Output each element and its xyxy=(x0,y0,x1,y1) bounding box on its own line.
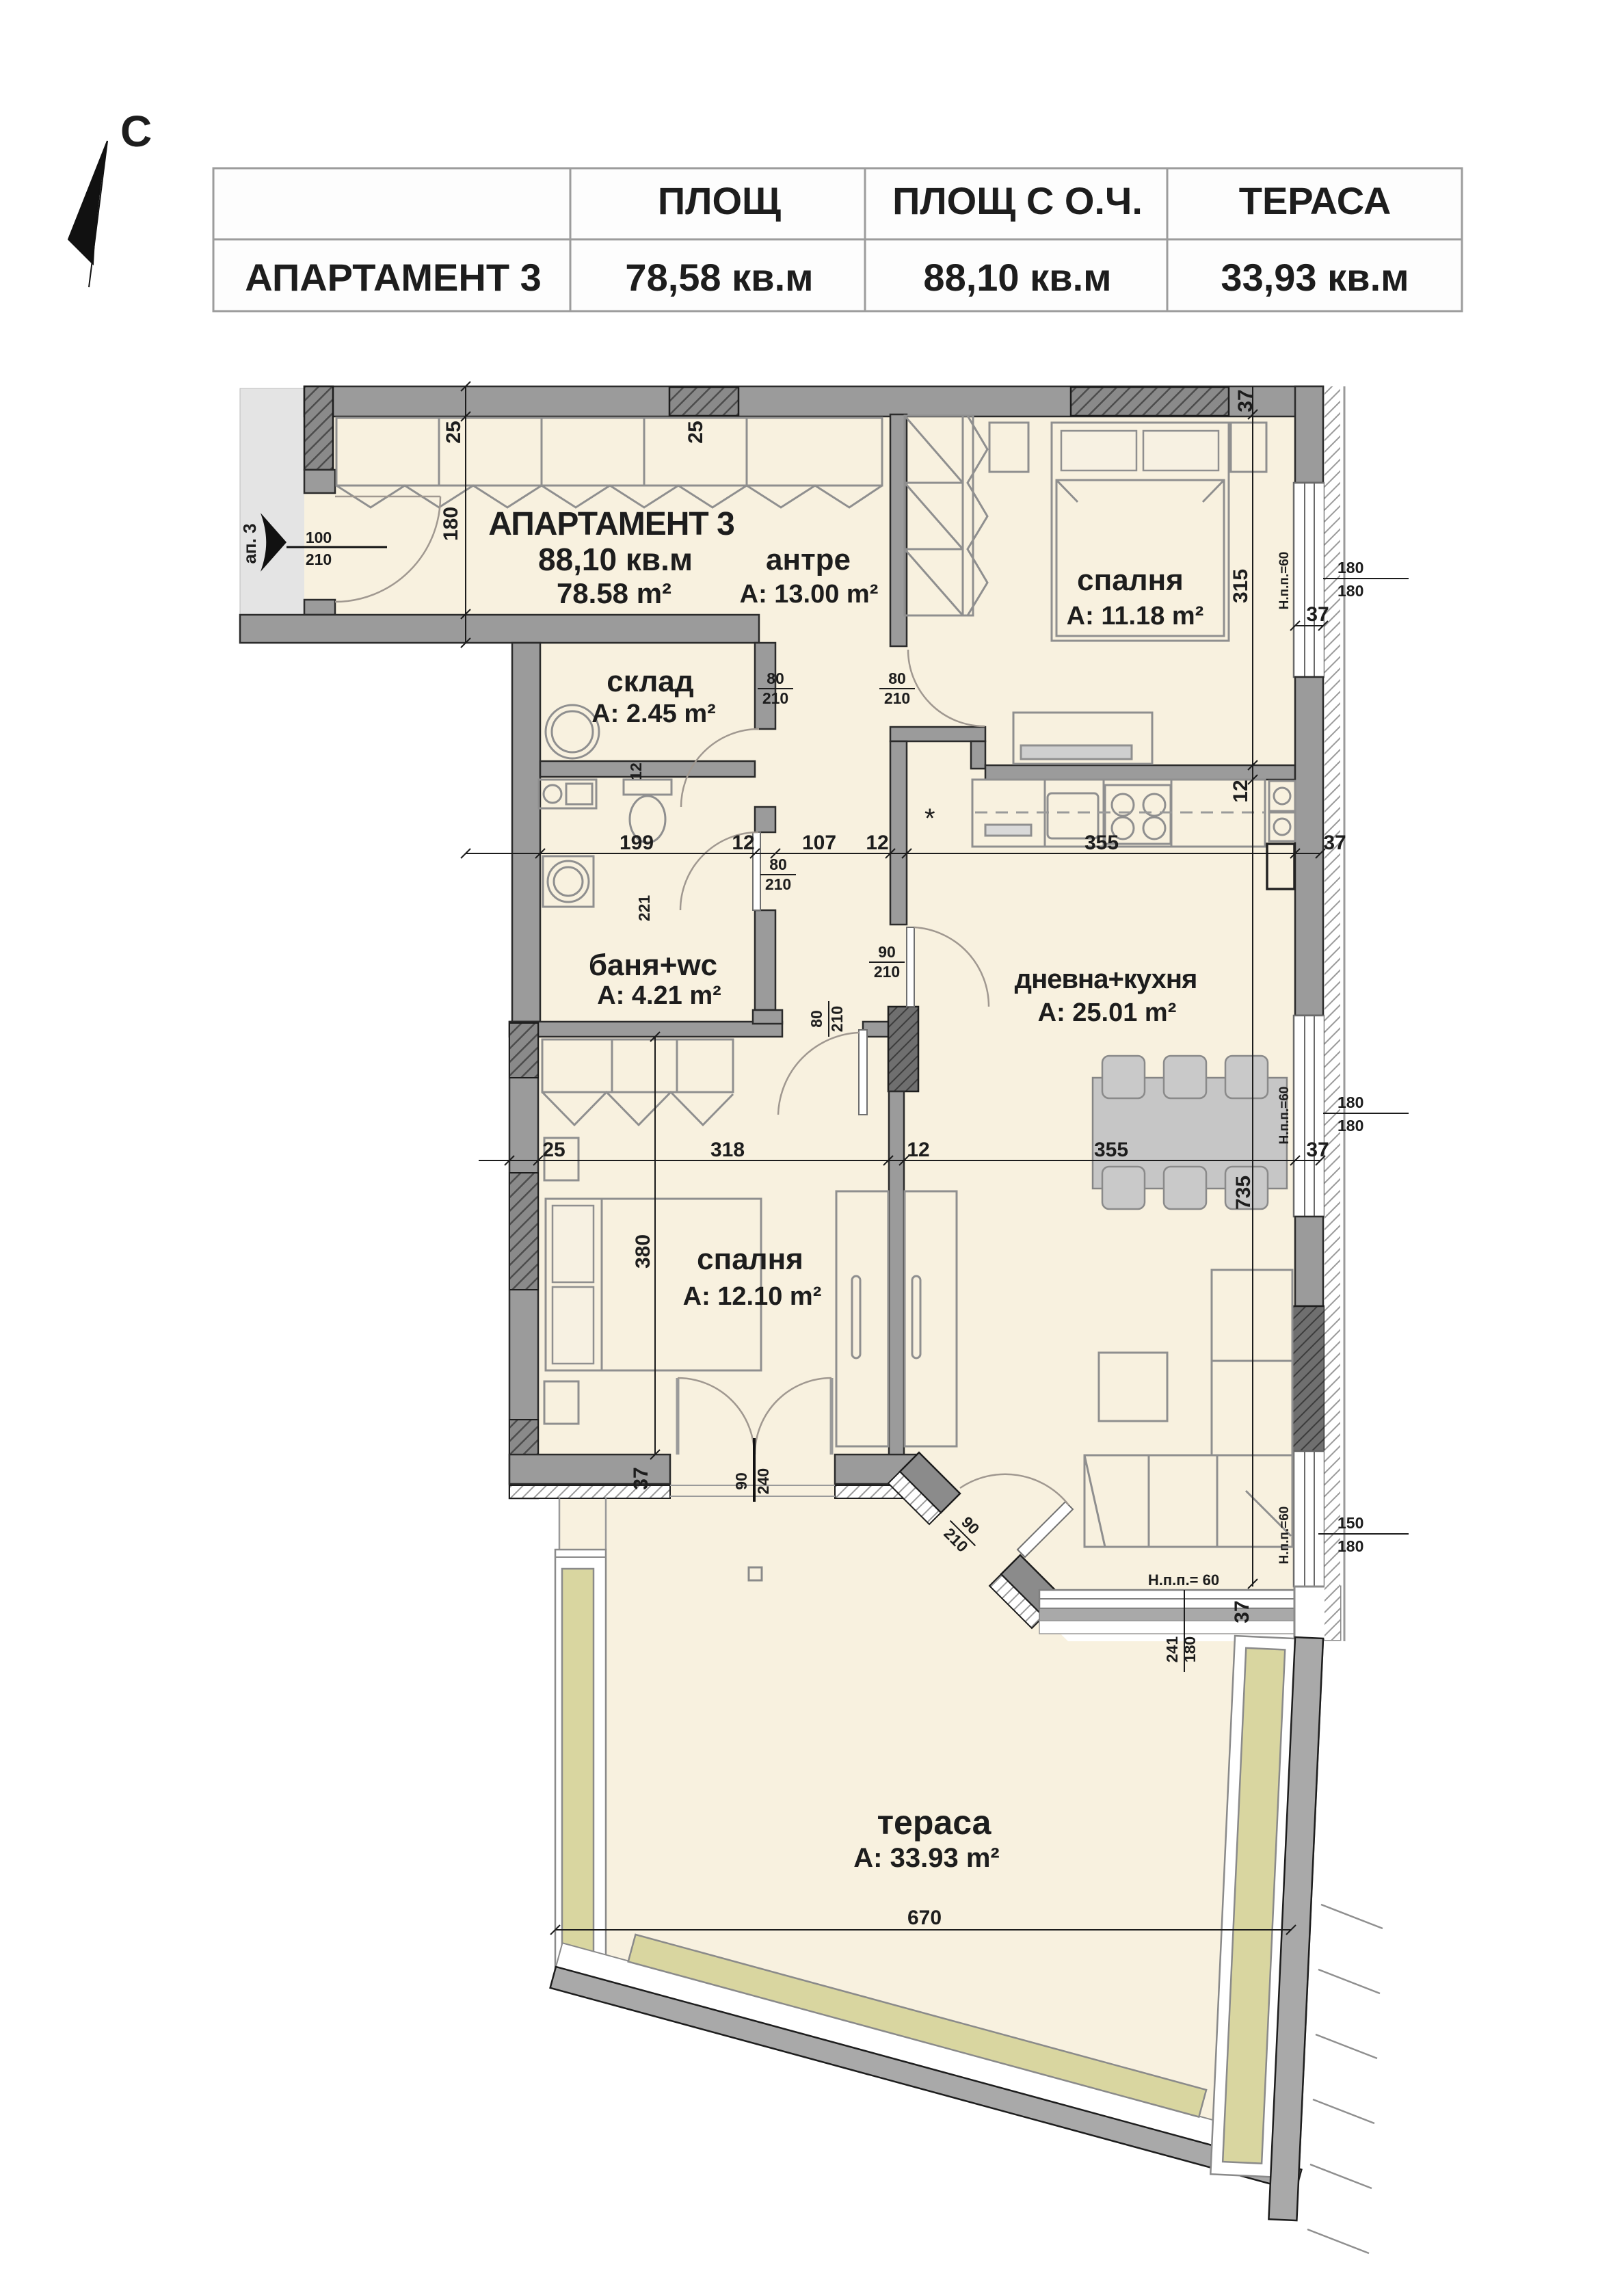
svg-text:150: 150 xyxy=(1337,1514,1363,1532)
svg-text:ап. 3: ап. 3 xyxy=(239,523,260,563)
svg-text:АПАРТАМЕНТ 3: АПАРТАМЕНТ 3 xyxy=(488,506,734,542)
svg-text:37: 37 xyxy=(630,1467,652,1489)
svg-text:88,10 кв.м: 88,10 кв.м xyxy=(538,542,693,577)
svg-text:12: 12 xyxy=(627,762,645,780)
svg-text:*: * xyxy=(924,804,935,834)
svg-text:180: 180 xyxy=(440,507,462,541)
svg-text:355: 355 xyxy=(1084,832,1119,854)
svg-text:78,58 кв.м: 78,58 кв.м xyxy=(625,256,813,299)
svg-text:240: 240 xyxy=(754,1468,772,1494)
svg-text:A: 25.01 m²: A: 25.01 m² xyxy=(1038,998,1177,1027)
svg-text:25: 25 xyxy=(684,421,707,443)
svg-text:A: 12.10 m²: A: 12.10 m² xyxy=(683,1282,822,1311)
svg-text:80: 80 xyxy=(888,669,906,687)
svg-text:210: 210 xyxy=(874,963,900,981)
svg-text:тераса: тераса xyxy=(877,1803,992,1842)
svg-text:210: 210 xyxy=(765,875,791,893)
svg-text:670: 670 xyxy=(907,1907,942,1929)
svg-text:380: 380 xyxy=(632,1234,654,1269)
svg-text:315: 315 xyxy=(1229,569,1252,603)
svg-text:33,93 кв.м: 33,93 кв.м xyxy=(1221,256,1409,299)
svg-text:A: 2.45 m²: A: 2.45 m² xyxy=(591,700,716,728)
svg-text:A: 11.18 m²: A: 11.18 m² xyxy=(1067,602,1204,631)
svg-text:ПЛОЩ С О.Ч.: ПЛОЩ С О.Ч. xyxy=(892,179,1143,222)
svg-text:80: 80 xyxy=(767,669,784,687)
svg-text:25: 25 xyxy=(542,1139,565,1161)
svg-text:АПАРТАМЕНТ 3: АПАРТАМЕНТ 3 xyxy=(245,256,541,299)
svg-text:ТЕРАСА: ТЕРАСА xyxy=(1239,179,1392,222)
svg-text:180: 180 xyxy=(1337,582,1363,600)
svg-text:37: 37 xyxy=(1306,1139,1329,1161)
svg-text:318: 318 xyxy=(710,1139,745,1161)
svg-text:180: 180 xyxy=(1337,1117,1363,1135)
svg-text:37: 37 xyxy=(1234,389,1257,412)
svg-text:баня+wc: баня+wc xyxy=(589,948,717,982)
svg-text:A: 33.93 m²: A: 33.93 m² xyxy=(853,1843,999,1873)
svg-text:180: 180 xyxy=(1337,559,1363,576)
svg-text:210: 210 xyxy=(884,689,910,707)
svg-text:Н.п.п.=60: Н.п.п.=60 xyxy=(1277,1087,1292,1145)
svg-text:180: 180 xyxy=(1181,1636,1199,1662)
svg-text:210: 210 xyxy=(828,1006,846,1032)
svg-text:антре: антре xyxy=(766,543,851,576)
svg-text:735: 735 xyxy=(1232,1176,1255,1210)
svg-text:100: 100 xyxy=(306,529,332,546)
svg-text:дневна+кухня: дневна+кухня xyxy=(1015,964,1197,994)
svg-text:88,10 кв.м: 88,10 кв.м xyxy=(923,256,1111,299)
svg-text:78.58 m²: 78.58 m² xyxy=(557,577,671,609)
svg-text:C: C xyxy=(120,107,152,156)
svg-text:221: 221 xyxy=(635,895,653,922)
svg-text:37: 37 xyxy=(1323,832,1346,854)
svg-text:12: 12 xyxy=(1229,780,1252,802)
svg-text:107: 107 xyxy=(802,832,836,854)
svg-text:210: 210 xyxy=(762,689,788,707)
svg-text:Н.п.п.= 60: Н.п.п.= 60 xyxy=(1148,1571,1219,1589)
svg-text:12: 12 xyxy=(907,1139,929,1161)
svg-text:12: 12 xyxy=(732,832,754,854)
svg-text:90: 90 xyxy=(732,1472,750,1490)
svg-text:Н.п.п.=60: Н.п.п.=60 xyxy=(1277,552,1292,610)
svg-text:37: 37 xyxy=(1231,1600,1253,1623)
svg-text:A: 4.21 m²: A: 4.21 m² xyxy=(597,981,721,1010)
svg-text:199: 199 xyxy=(620,832,654,854)
svg-text:спалня: спалня xyxy=(1077,563,1184,597)
svg-text:спалня: спалня xyxy=(697,1243,803,1276)
svg-text:25: 25 xyxy=(442,421,465,443)
svg-text:12: 12 xyxy=(866,832,888,854)
svg-text:210: 210 xyxy=(306,550,332,568)
svg-text:Н.п.п.=60: Н.п.п.=60 xyxy=(1277,1507,1292,1565)
svg-text:80: 80 xyxy=(808,1010,825,1028)
svg-text:180: 180 xyxy=(1337,1093,1363,1111)
svg-text:37: 37 xyxy=(1306,603,1329,626)
svg-text:A: 13.00 m²: A: 13.00 m² xyxy=(740,580,879,609)
svg-text:90: 90 xyxy=(878,943,896,961)
svg-text:241: 241 xyxy=(1163,1636,1181,1663)
svg-text:склад: склад xyxy=(607,665,693,698)
svg-text:80: 80 xyxy=(769,855,787,873)
svg-text:180: 180 xyxy=(1337,1537,1363,1555)
svg-text:355: 355 xyxy=(1094,1139,1128,1161)
svg-text:ПЛОЩ: ПЛОЩ xyxy=(658,179,781,222)
